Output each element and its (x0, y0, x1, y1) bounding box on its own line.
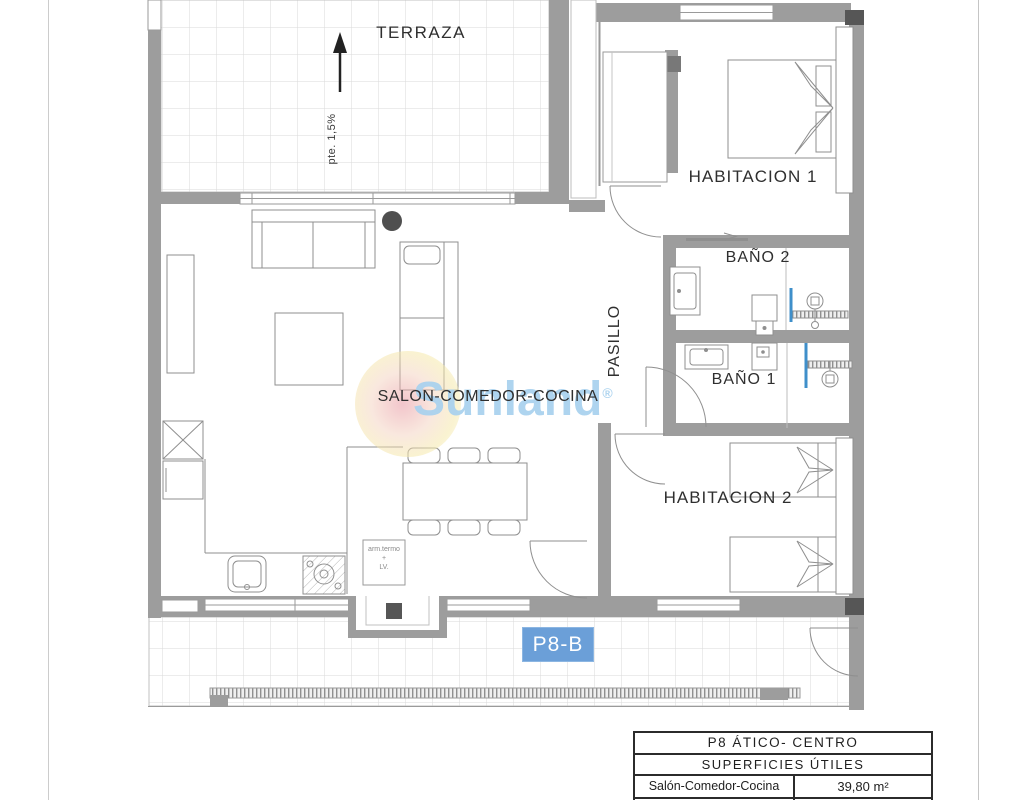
entry-door (530, 541, 587, 598)
bedroom2-door (615, 434, 665, 484)
hob (303, 556, 345, 594)
unit-badge: P8-B (522, 627, 594, 662)
bathroom1-toilet (752, 343, 777, 370)
entry-side-window (447, 599, 530, 611)
label-habitacion-2: HABITACION 2 (648, 488, 808, 508)
bathroom2-sink (670, 267, 700, 315)
wall-niche (162, 600, 198, 612)
sink (228, 556, 266, 592)
appliance-note: arm.termo + LV. (362, 545, 406, 572)
corner-pillar-bottom (845, 598, 864, 615)
bathroom1-sink (685, 345, 728, 369)
surface-info-table: P8 ÁTICO- CENTRO SUPERFICIES ÚTILES Saló… (633, 731, 933, 800)
table-title: P8 ÁTICO- CENTRO (635, 733, 931, 755)
appliance-note-line1: arm.termo (362, 545, 406, 554)
railing (210, 688, 800, 698)
dining-set (403, 448, 527, 535)
label-bano-1: BAÑO 1 (684, 371, 804, 389)
room-area-cell: 39,80 m² (795, 776, 931, 797)
column-dot (382, 211, 402, 231)
doormat (386, 603, 402, 619)
table-subtitle: SUPERFICIES ÚTILES (635, 755, 931, 776)
floor-plan-page: Sunland® TERRAZA pte. 1,5% HABITACION 1 … (0, 0, 1024, 800)
label-habitacion-1: HABITACION 1 (673, 167, 833, 187)
appliance-note-line3: LV. (362, 563, 406, 572)
sideboard (167, 255, 194, 373)
table-row: Salón-Comedor-Cocina 39,80 m² (635, 776, 931, 799)
single-bed-2 (730, 537, 836, 592)
label-terraza: TERRAZA (351, 23, 491, 43)
bedroom1-door (610, 186, 661, 237)
corner-pillar-top (845, 10, 864, 25)
entry-porch (352, 596, 443, 634)
terrace-sliding-door (240, 193, 515, 204)
label-slope-note: pte. 1,5% (326, 94, 338, 184)
room-name-cell: Salón-Comedor-Cocina (635, 776, 795, 797)
bedroom2-window (657, 599, 740, 611)
appliance-note-line2: + (362, 554, 406, 563)
bathroom2-toilet (752, 295, 777, 335)
terrace-bottom-floor (148, 617, 864, 707)
bedroom2-furniture (730, 438, 853, 594)
bedroom1-window (680, 5, 773, 20)
coffee-table (275, 313, 343, 385)
label-salon-comedor-cocina: SALON-COMEDOR-COCINA (368, 388, 608, 406)
label-pasillo: PASILLO (606, 296, 624, 386)
label-bano-2: BAÑO 2 (698, 249, 818, 267)
wardrobe (603, 52, 667, 182)
light-well (571, 0, 596, 198)
sofa (252, 210, 375, 268)
bedside-shelf (836, 438, 853, 594)
tall-units (163, 421, 203, 499)
